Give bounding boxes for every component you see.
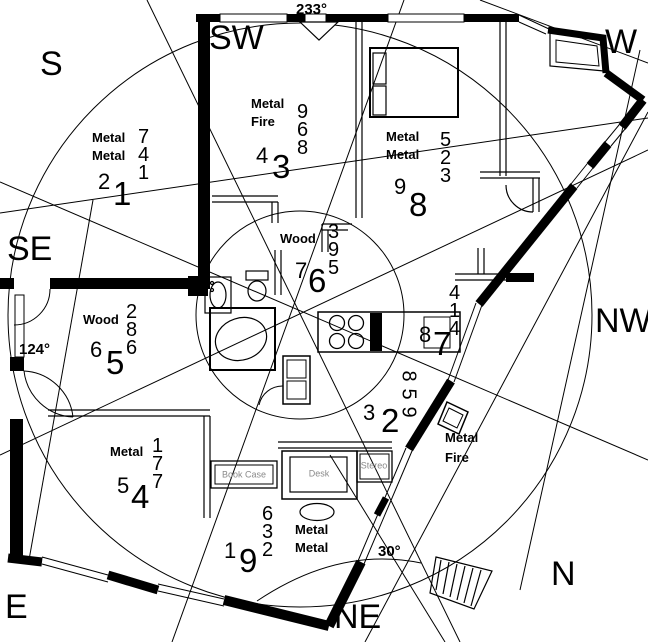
sector-south-star: 1 xyxy=(138,163,149,183)
sector-northeast-element: Metal xyxy=(295,541,328,554)
side-angle-label: 124° xyxy=(19,342,50,357)
sector-south-element: Metal xyxy=(92,149,125,162)
sector-northeast-element: Metal xyxy=(295,523,328,536)
door-swing-arc-bottom xyxy=(257,559,421,601)
compass-east: E xyxy=(5,590,28,624)
burner xyxy=(330,316,345,331)
compass-north: N xyxy=(551,557,576,591)
sector-center-star: 5 xyxy=(328,258,339,278)
furniture xyxy=(211,48,468,521)
compass-southeast: SE xyxy=(7,232,52,266)
sector-southwest-element: Metal xyxy=(251,97,284,110)
book-case-label: Book Case xyxy=(222,471,266,480)
sector-southwest-base-number: 3 xyxy=(272,150,290,183)
sector-north-upper-star: 5 xyxy=(399,388,419,399)
sector-north-upper-star-left: 3 xyxy=(363,402,375,424)
compass-northwest: NW xyxy=(595,304,648,338)
stereo-label: Stereo xyxy=(361,462,388,471)
compass-southwest: SW xyxy=(209,21,264,55)
sector-southeast-star-left: 6 xyxy=(90,339,102,361)
sector-south-base-number: 1 xyxy=(113,177,131,210)
rug-oval xyxy=(300,504,334,521)
facing-angle-label: 233° xyxy=(296,2,327,17)
compass-south: S xyxy=(40,47,63,81)
sector-north-upper-base-number: 2 xyxy=(381,404,399,437)
compass-northeast: NE xyxy=(334,600,381,634)
sector-northeast-base-number: 9 xyxy=(239,544,257,577)
sector-southwest-element: Fire xyxy=(251,115,275,128)
bathtub xyxy=(210,311,272,367)
sector-northwest-base-number: 7 xyxy=(433,327,451,360)
desk-label: Desk xyxy=(309,470,330,479)
windows xyxy=(15,14,625,606)
counter-divider xyxy=(370,313,382,351)
sector-northeast-right-element: Fire xyxy=(445,451,469,464)
toilet-bowl xyxy=(248,281,266,301)
sector-northwest-star-left: 8 xyxy=(419,324,431,346)
sector-west-element: Metal xyxy=(386,130,419,143)
sector-northeast-right-element: Metal xyxy=(445,431,478,444)
sector-northeast-star: 2 xyxy=(262,540,273,560)
sector-east-star-left: 5 xyxy=(117,475,129,497)
toilet-tank xyxy=(246,271,268,280)
sector-center-star-left: 7 xyxy=(295,260,307,282)
sector-center-base-number: 6 xyxy=(308,264,326,297)
sector-west-base-number: 8 xyxy=(409,188,427,221)
sector-center-element: Wood xyxy=(280,232,316,245)
stair-angle-label: 30° xyxy=(378,544,401,559)
sector-east-element: Metal xyxy=(110,445,143,458)
sector-southeast-element: Wood xyxy=(83,313,119,326)
balcony xyxy=(519,15,606,73)
sector-southwest-star-left: 4 xyxy=(256,145,268,167)
floorplan-page: S SW W SE NW E NE N 233° 124° 30° Metal … xyxy=(0,0,648,642)
sector-north-upper-star: 8 xyxy=(399,370,419,381)
stairs xyxy=(430,557,492,609)
sector-south-element: Metal xyxy=(92,131,125,144)
sector-northeast-star-left: 1 xyxy=(224,540,236,562)
sector-west-element: Metal xyxy=(386,148,419,161)
burner xyxy=(349,334,364,349)
sector-southeast-star: 6 xyxy=(126,338,137,358)
sector-southwest-star: 8 xyxy=(297,138,308,158)
sector-west-star-left: 9 xyxy=(394,176,406,198)
sector-southeast-base-number: 5 xyxy=(106,346,124,379)
burner xyxy=(330,334,345,349)
sector-west-star: 3 xyxy=(440,166,451,186)
sector-east-star: 7 xyxy=(152,472,163,492)
pillow xyxy=(373,86,386,115)
burner xyxy=(349,316,364,331)
sector-east-base-number: 4 xyxy=(131,480,149,513)
compass-west: W xyxy=(605,25,637,59)
sector-south-star-left: 2 xyxy=(98,171,110,193)
bathroom xyxy=(205,271,275,370)
facing-marker-wedge xyxy=(300,22,338,40)
sector-north-upper-star: 9 xyxy=(399,406,419,417)
